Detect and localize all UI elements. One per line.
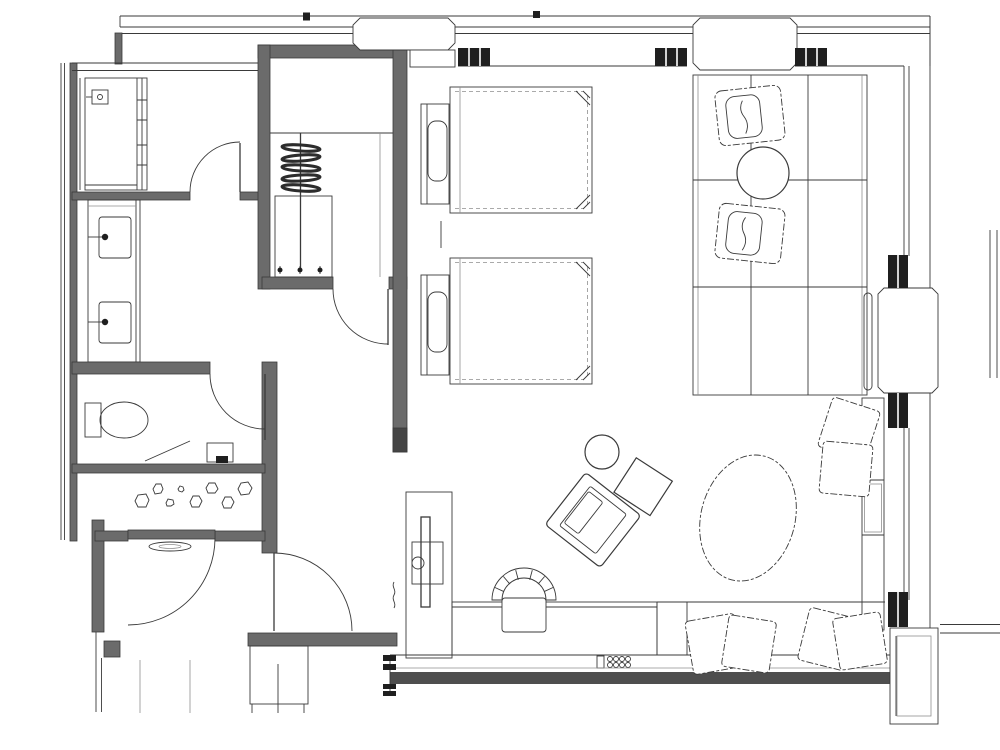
desk-accessories [597, 656, 631, 668]
exterior-unit-block [890, 628, 938, 724]
bathroom-door-swing-icon [190, 142, 240, 192]
coffee-table-icon [737, 147, 789, 199]
desk-icon [452, 602, 657, 668]
hanger-rack-icon [278, 133, 323, 274]
sink-icon [88, 217, 131, 258]
bathroom [72, 78, 262, 200]
floor-plan-page [0, 0, 1000, 750]
armchair-icon [714, 203, 785, 265]
walk-in-closet [258, 45, 407, 345]
shelf-line [145, 441, 190, 461]
entrance-door-swing-icon [128, 530, 215, 625]
vanity-corridor [88, 200, 140, 362]
pebble-decor-icon [135, 482, 252, 508]
closet-drawer-unit [275, 196, 332, 277]
twin-bed-icon [421, 87, 592, 213]
pillow-icon [428, 292, 447, 352]
twin-bed-icon [421, 258, 592, 384]
floorplan-svg [0, 0, 1000, 750]
toilet-door-swing-icon [210, 374, 265, 440]
closet-door-swing-icon [333, 289, 388, 345]
toilet-paper-holder-icon [207, 443, 233, 463]
tv-console [393, 492, 452, 658]
tv-icon [412, 517, 443, 607]
sink-icon [88, 302, 131, 343]
inner-door-swing-icon [274, 553, 352, 631]
shower-head-icon [86, 90, 108, 104]
cable-detail [393, 582, 395, 608]
pillow-icon [428, 121, 447, 181]
entry-hall [95, 530, 397, 713]
round-side-table-icon [585, 435, 619, 469]
bedroom-partition-wall [393, 45, 407, 452]
exterior-shaft [250, 646, 308, 713]
shower-stall-icon [80, 78, 147, 190]
desk-chair-icon [492, 568, 556, 632]
oval-ottoman-icon [686, 444, 810, 592]
armchair-icon [714, 85, 785, 147]
toilet-icon [85, 402, 148, 438]
